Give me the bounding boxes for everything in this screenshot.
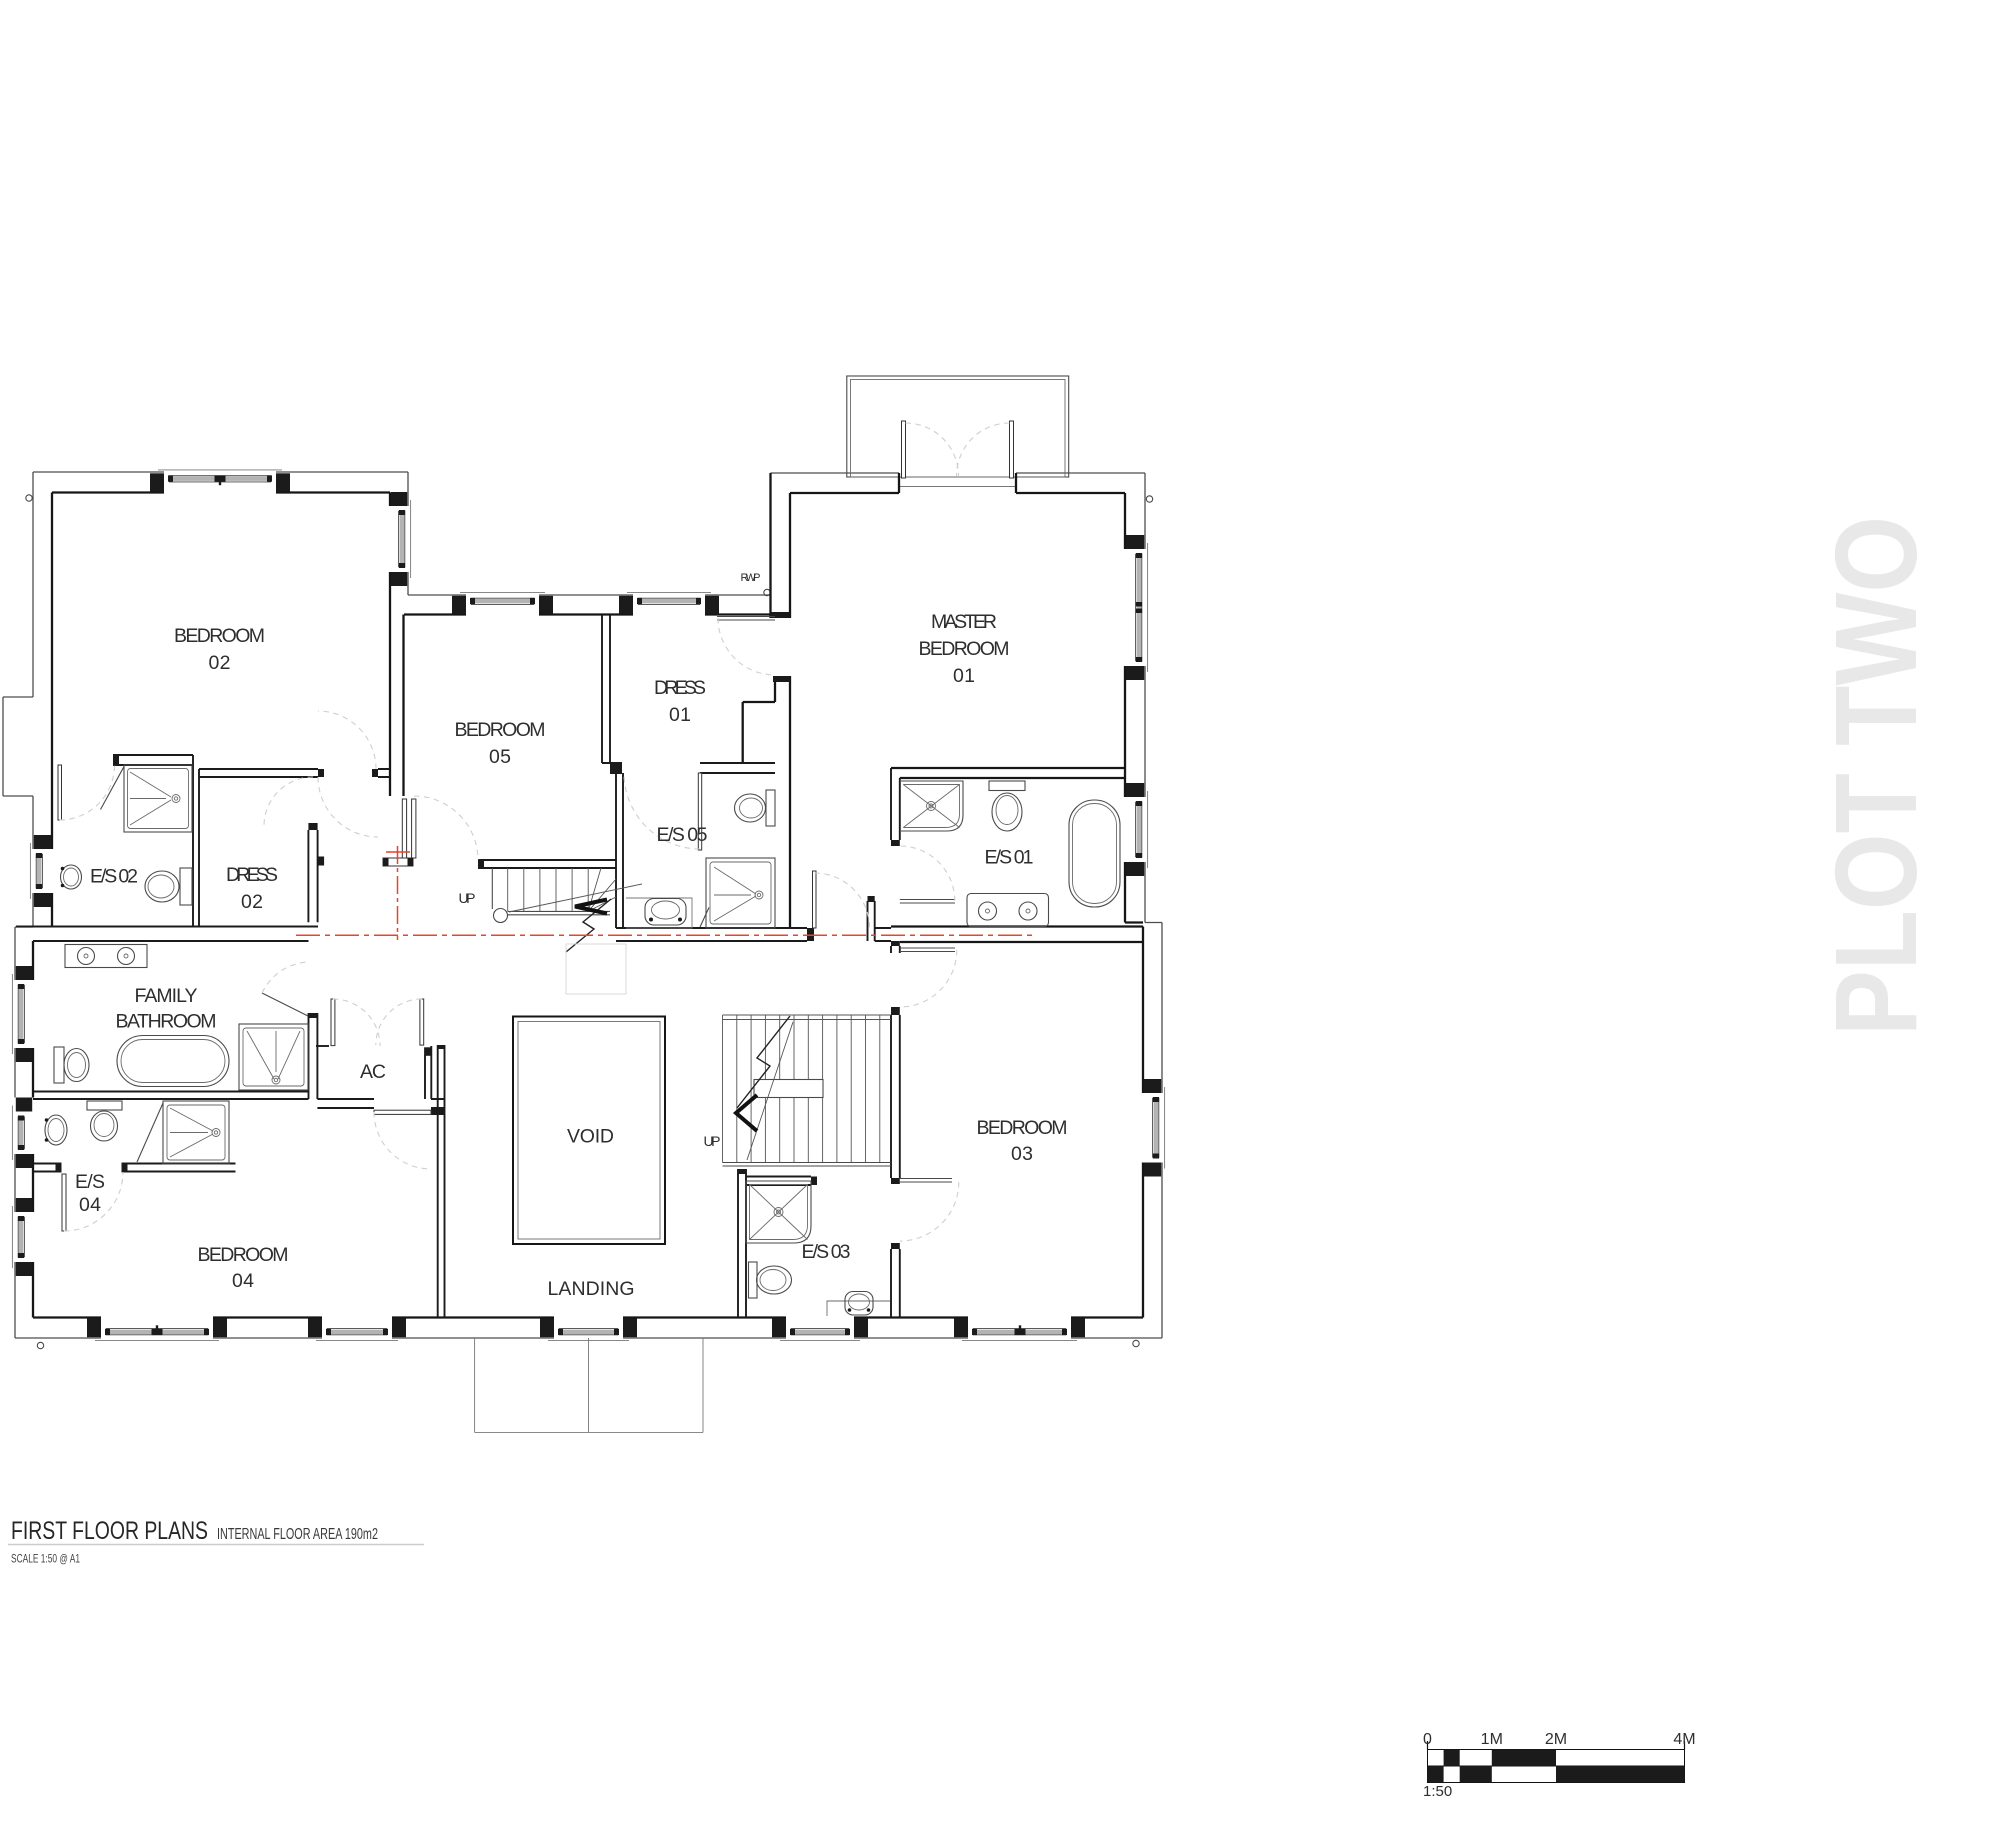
svg-text:E/S 01: E/S 01 [985, 847, 1034, 869]
svg-text:DRESS: DRESS [226, 864, 278, 886]
svg-text:MASTER: MASTER [931, 611, 997, 633]
svg-text:E/S 02: E/S 02 [90, 866, 138, 888]
svg-text:01: 01 [953, 665, 975, 687]
svg-text:FIRST FLOOR PLANS: FIRST FLOOR PLANS [11, 1517, 208, 1545]
svg-text:UP: UP [459, 890, 476, 906]
svg-text:01: 01 [669, 704, 691, 726]
svg-text:2M: 2M [1545, 1731, 1567, 1748]
svg-text:BEDROOM: BEDROOM [919, 638, 1010, 660]
svg-text:FAMILY: FAMILY [135, 985, 198, 1007]
svg-text:BEDROOM: BEDROOM [455, 719, 546, 741]
svg-text:BATHROOM: BATHROOM [116, 1011, 217, 1033]
svg-text:04: 04 [232, 1270, 254, 1292]
svg-text:VOID: VOID [567, 1126, 614, 1148]
svg-text:DRESS: DRESS [654, 677, 706, 699]
svg-text:UP: UP [704, 1133, 721, 1149]
svg-text:RWP: RWP [741, 572, 761, 584]
svg-text:PLOT TWO: PLOT TWO [1811, 516, 1941, 1036]
svg-text:BEDROOM: BEDROOM [198, 1244, 289, 1266]
svg-text:INTERNAL FLOOR AREA 190m2: INTERNAL FLOOR AREA 190m2 [217, 1526, 378, 1543]
svg-text:1:50: 1:50 [1423, 1783, 1452, 1800]
svg-text:05: 05 [489, 746, 511, 768]
svg-text:4M: 4M [1673, 1731, 1695, 1748]
svg-text:1M: 1M [1481, 1731, 1503, 1748]
svg-text:AC: AC [360, 1061, 386, 1083]
svg-text:BEDROOM: BEDROOM [977, 1117, 1068, 1139]
svg-text:E/S 05: E/S 05 [657, 824, 708, 846]
svg-text:E/S 03: E/S 03 [802, 1241, 851, 1263]
svg-text:SCALE 1:50 @ A1: SCALE 1:50 @ A1 [11, 1552, 80, 1566]
svg-text:LANDING: LANDING [548, 1278, 635, 1300]
svg-text:E/S: E/S [75, 1171, 105, 1193]
svg-text:BEDROOM: BEDROOM [174, 625, 265, 647]
svg-text:0: 0 [1423, 1731, 1432, 1748]
svg-text:03: 03 [1011, 1143, 1033, 1165]
svg-text:02: 02 [241, 891, 263, 913]
svg-text:02: 02 [209, 652, 231, 674]
svg-text:04: 04 [79, 1194, 101, 1216]
